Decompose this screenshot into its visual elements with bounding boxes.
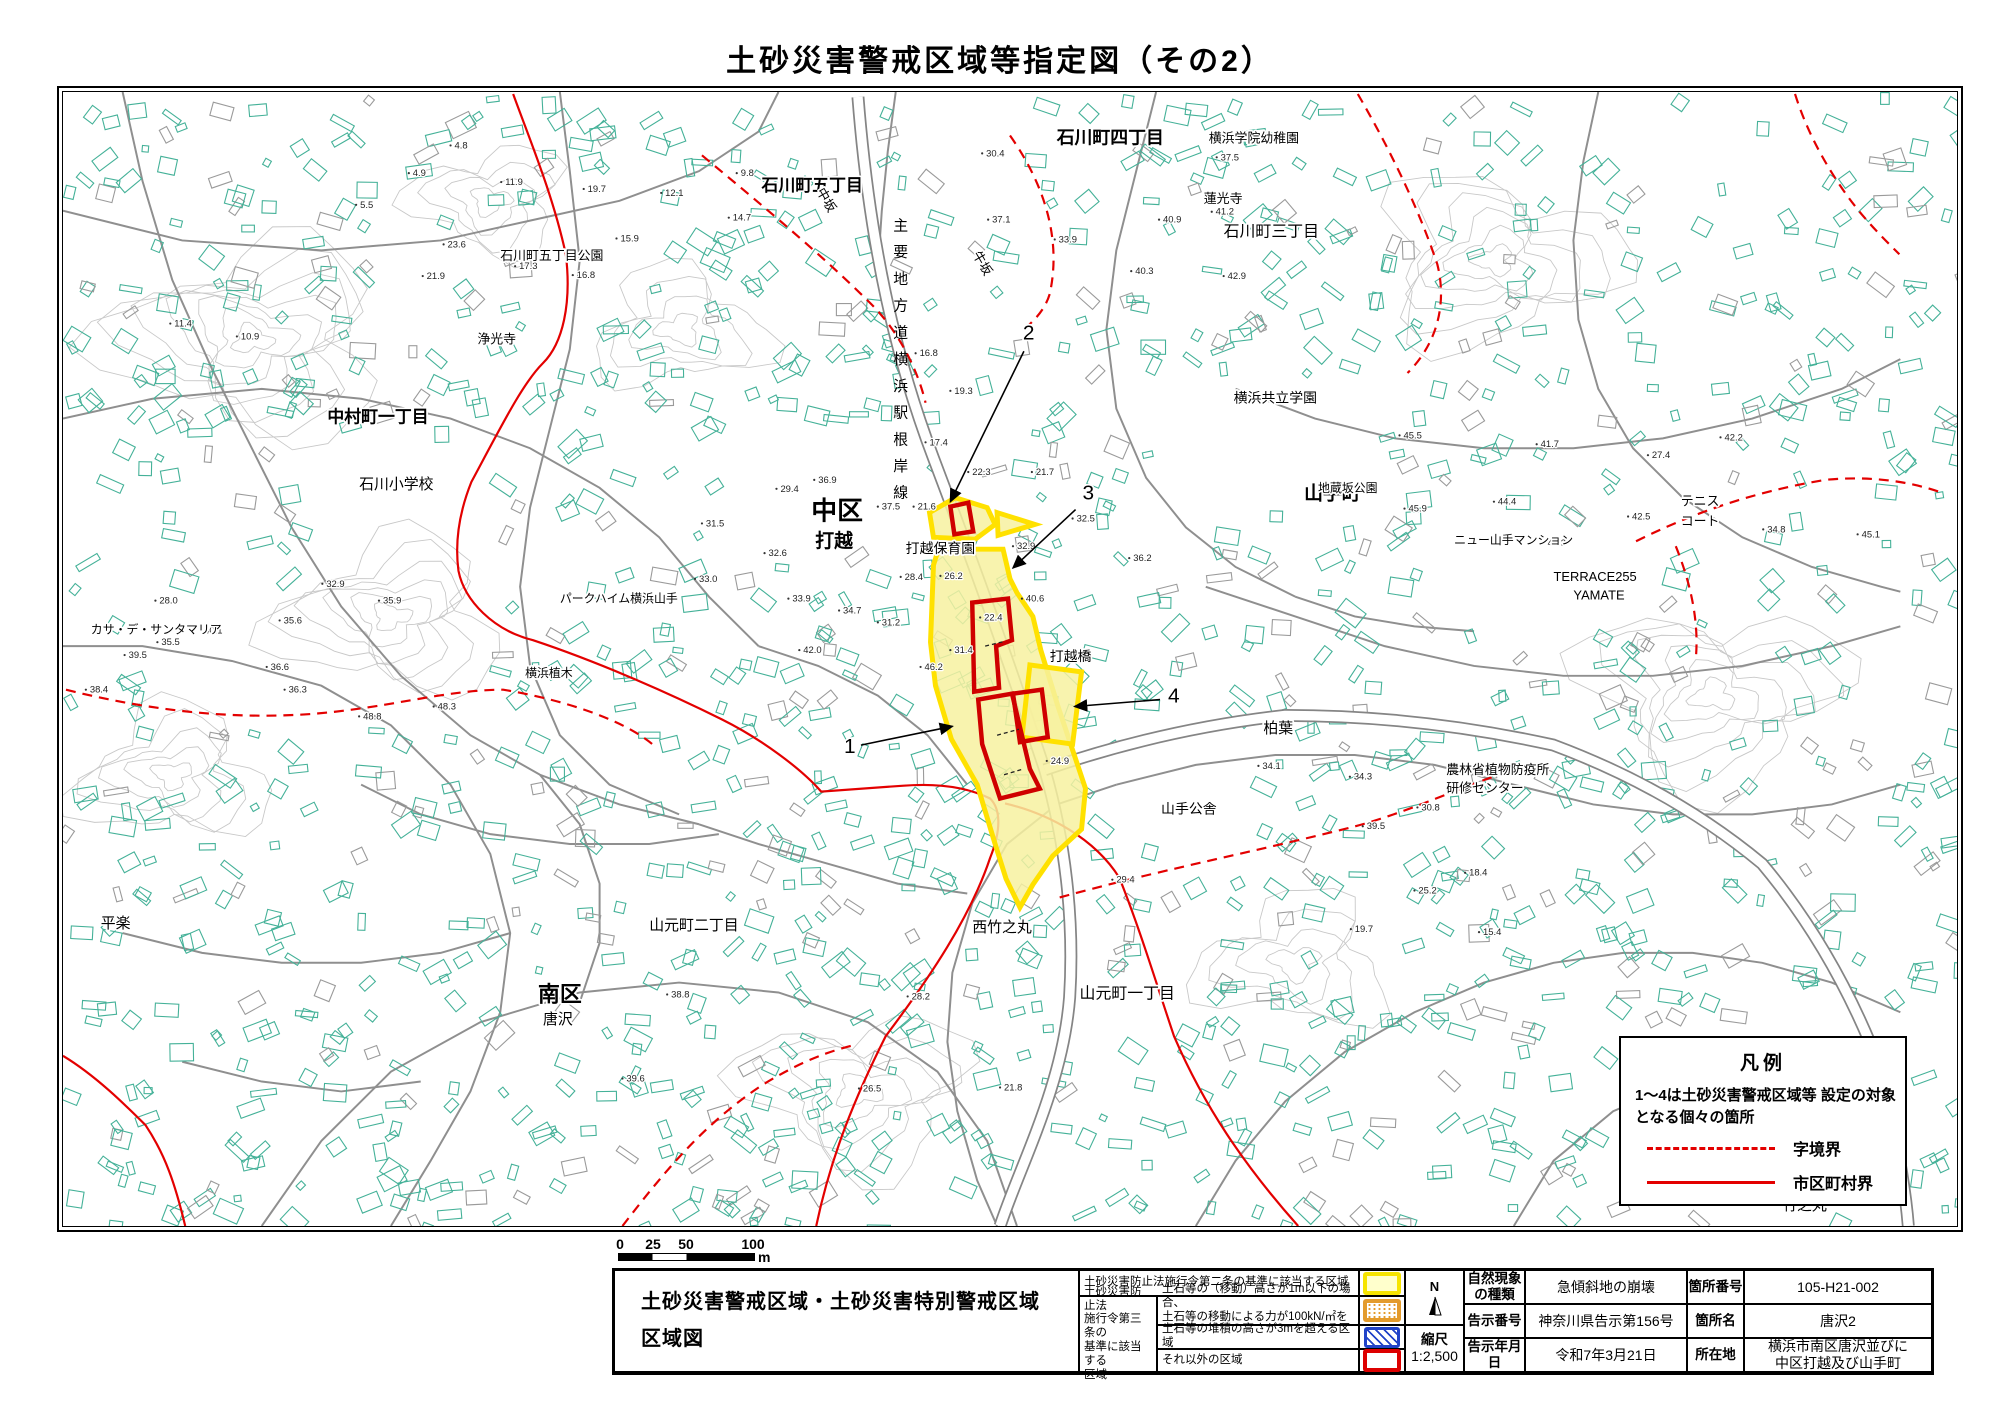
map-sheet-title: 土砂災害警戒区域・土砂災害特別警戒区域 区域図 xyxy=(614,1270,1079,1372)
spot-elevation: 33.0 xyxy=(699,573,717,584)
spot-elevation: 35.9 xyxy=(383,595,401,606)
area-number-1: 1 xyxy=(844,735,856,758)
spot-elevation: 36.3 xyxy=(289,684,307,695)
spot-elevation: 12.1 xyxy=(665,187,683,198)
scale-tick-0: 0 xyxy=(616,1236,624,1252)
law3-row2-desc: 土石等の堆積の高さが3mを超える区域 xyxy=(1157,1325,1359,1349)
main-road-label-char: 横 xyxy=(893,351,908,368)
spot-elevation: 21.6 xyxy=(918,501,936,512)
spot-elevation: 33.9 xyxy=(1059,233,1077,244)
value-location-line1: 横浜市南区唐沢並びに xyxy=(1768,1338,1908,1355)
value-location-line2: 中区打越及び山手町 xyxy=(1768,1355,1908,1372)
map-place-label: コート xyxy=(1681,513,1720,528)
map-place-label: 打越 xyxy=(815,529,853,551)
spot-elevation: 32.6 xyxy=(769,547,787,558)
page: { "page_title": "土砂災害警戒区域等指定図（その2）", "ma… xyxy=(0,0,2000,1414)
spot-elevation: 27.4 xyxy=(1652,449,1670,460)
spot-elevation: 36.6 xyxy=(271,661,289,672)
swatch-cell-red xyxy=(1359,1349,1405,1372)
spot-elevation: 26.2 xyxy=(944,570,962,581)
spot-elevation: 25.2 xyxy=(1418,885,1436,896)
spot-elevation: 28.4 xyxy=(905,571,923,582)
spot-elevation: 22.3 xyxy=(972,466,990,477)
dashed-boundary-label: 字境界 xyxy=(1793,1136,1841,1160)
map-sheet-title-line1: 土砂災害警戒区域・土砂災害特別警戒区域 xyxy=(641,1284,1040,1321)
spot-elevation: 28.0 xyxy=(159,595,177,606)
area-number-3: 3 xyxy=(1083,482,1095,505)
spot-elevation: 39.5 xyxy=(1367,820,1385,831)
law3-row1-desc: 土石等の（移動）高さが1m以下の場合、 土石等の移動による力が100kN/㎡を超… xyxy=(1157,1296,1359,1325)
main-road-label-char: 岸 xyxy=(893,458,908,475)
main-road-label-char: 地 xyxy=(893,271,908,288)
scale-tick-50: 50 xyxy=(678,1236,694,1252)
spot-elevation: 48.8 xyxy=(363,710,381,721)
spot-elevation: 15.4 xyxy=(1483,926,1501,937)
spot-elevation: 40.6 xyxy=(1026,593,1044,604)
label-natural-phenomenon-l1: 自然現象 xyxy=(1468,1271,1522,1287)
spot-elevation: 45.9 xyxy=(1408,503,1426,514)
spot-elevation: 31.4 xyxy=(954,644,972,655)
spot-elevation: 11.4 xyxy=(174,318,192,329)
spot-elevation: 35.6 xyxy=(284,614,302,625)
map-place-label: 西竹之丸 xyxy=(972,919,1032,936)
map-frame: 主要地方道横浜駅根岸線4.84.95.511.919.712.19.817.31… xyxy=(57,86,1963,1232)
spot-elevation: 41.7 xyxy=(1541,438,1559,449)
swatch-cell-blue xyxy=(1359,1325,1405,1349)
spot-elevation: 37.1 xyxy=(992,214,1010,225)
map-place-label: 南区 xyxy=(538,981,582,1006)
map-place-label: 横浜植木 xyxy=(525,666,573,680)
spot-elevation: 42.9 xyxy=(1228,270,1246,281)
spot-elevation: 5.5 xyxy=(360,199,373,210)
map-sheet-title-line2: 区域図 xyxy=(641,1321,1040,1358)
page-title: 土砂災害警戒区域等指定図（その2） xyxy=(0,36,2000,80)
map-place-label: パークハイム横浜山手 xyxy=(560,592,678,606)
spot-elevation: 42.5 xyxy=(1632,510,1650,521)
swatch-cell-yellow xyxy=(1359,1270,1405,1296)
label-site-name: 箇所名 xyxy=(1687,1304,1744,1338)
main-road-label-char: 要 xyxy=(893,245,908,261)
spot-elevation: 40.9 xyxy=(1163,214,1181,225)
label-notice-date: 告示年月日 xyxy=(1464,1338,1525,1372)
spot-elevation: 35.5 xyxy=(161,636,179,647)
map-place-label: 石川町五丁目公園 xyxy=(500,248,603,263)
spot-elevation: 44.4 xyxy=(1498,496,1516,507)
spot-elevation: 42.2 xyxy=(1724,431,1742,442)
spot-elevation: 16.8 xyxy=(920,347,938,358)
law3-zone-label: 土砂災害防止法 施行令第三条の 基準に該当する 区域 xyxy=(1079,1296,1157,1372)
map-place-label: YAMATE xyxy=(1573,588,1625,603)
map-place-label: 平楽 xyxy=(101,915,131,932)
main-road-label-char: 浜 xyxy=(893,378,908,395)
map-place-label: 石川町四丁目 xyxy=(1056,127,1164,147)
spot-elevation: 36.2 xyxy=(1133,552,1151,563)
map-place-label: 蓮光寺 xyxy=(1204,191,1243,206)
area-number-2: 2 xyxy=(1023,321,1035,344)
spot-elevation: 40.3 xyxy=(1135,265,1153,276)
legend-row-solid: 市区町村界 xyxy=(1621,1167,1905,1197)
legend-note: 1〜4は土砂災害警戒区域等 設定の対象となる個々の箇所 xyxy=(1635,1085,1905,1129)
spot-elevation: 45.1 xyxy=(1862,528,1880,539)
map-place-label: 唐沢 xyxy=(543,1011,573,1028)
map-place-label: テニス xyxy=(1681,494,1720,509)
label-location: 所在地 xyxy=(1687,1338,1744,1372)
spot-elevation: 4.9 xyxy=(413,167,426,178)
spot-elevation: 34.1 xyxy=(1262,760,1280,771)
map-place-label: 中村町一丁目 xyxy=(327,407,428,427)
main-road-label-char: 駅 xyxy=(893,406,908,422)
blue-zone-swatch xyxy=(1364,1327,1400,1348)
spot-elevation: 34.8 xyxy=(1767,523,1785,534)
law3-row1-desc-line1: 土石等の（移動）高さが1m以下の場合、 xyxy=(1162,1283,1354,1311)
map-place-label: 柏葉 xyxy=(1263,720,1293,737)
spot-elevation: 26.5 xyxy=(863,1082,881,1093)
spot-elevation: 38.4 xyxy=(90,684,108,695)
spot-elevation: 21.9 xyxy=(427,270,445,281)
map-place-label: 中区 xyxy=(811,497,863,526)
legend-title: 凡例 xyxy=(1621,1048,1905,1075)
main-road-label-char: 根 xyxy=(893,431,908,448)
map-legend: 凡例 1〜4は土砂災害警戒区域等 設定の対象となる個々の箇所 字境界 市区町村界 xyxy=(1619,1036,1907,1206)
scale-tick-25: 25 xyxy=(645,1236,661,1252)
dashed-boundary-sample xyxy=(1647,1147,1775,1150)
spot-elevation: 39.6 xyxy=(626,1073,644,1084)
label-site-number: 箇所番号 xyxy=(1687,1270,1744,1304)
main-road-label-char: 道 xyxy=(893,324,908,341)
map-place-label: 地蔵坂公園 xyxy=(1318,481,1377,495)
law3-line2: 施行令第三条の xyxy=(1084,1313,1152,1341)
spot-elevation: 21.8 xyxy=(1004,1081,1022,1092)
scale-cell: 縮尺 1:2,500 xyxy=(1405,1325,1464,1372)
main-road-label-char: 線 xyxy=(893,485,908,502)
spot-elevation: 30.4 xyxy=(986,147,1004,158)
label-natural-phenomenon: 自然現象の種類 xyxy=(1464,1270,1525,1304)
spot-elevation: 42.0 xyxy=(803,644,821,655)
yellow-zone-swatch xyxy=(1363,1272,1401,1295)
spot-elevation: 29.4 xyxy=(1116,874,1134,885)
spot-elevation: 21.7 xyxy=(1036,466,1054,477)
label-notice-number: 告示番号 xyxy=(1464,1304,1525,1338)
spot-elevation: 11.9 xyxy=(505,176,523,187)
map-place-label: 牛坂 xyxy=(970,248,996,278)
scale-bar: 0 25 50 100 m xyxy=(600,1236,820,1270)
spot-elevation: 33.9 xyxy=(792,593,810,604)
spot-elevation: 24.9 xyxy=(1051,755,1069,766)
map-place-label: 農林省植物防疫所 xyxy=(1446,762,1549,777)
hazard-zones xyxy=(930,498,1086,908)
scale-label: 縮尺 xyxy=(1411,1332,1458,1348)
scale-bar-strip xyxy=(618,1253,755,1261)
main-road-label-char: 方 xyxy=(893,298,908,315)
spot-elevation: 10.9 xyxy=(241,330,259,341)
value-notice-date: 令和7年3月21日 xyxy=(1525,1338,1687,1372)
spot-elevation: 4.8 xyxy=(455,139,468,150)
spot-elevation: 39.5 xyxy=(129,649,147,660)
map-inner: 主要地方道横浜駅根岸線4.84.95.511.919.712.19.817.31… xyxy=(62,91,1958,1227)
info-table: 土砂災害警戒区域・土砂災害特別警戒区域 区域図 土砂災害防止法施行令第二条の基準… xyxy=(612,1268,1934,1375)
law3-line4: 区域 xyxy=(1084,1369,1152,1383)
spot-elevation: 23.6 xyxy=(448,238,466,249)
law3-row3-desc: それ以外の区域 xyxy=(1157,1349,1359,1372)
legend-note-line1: 1〜4は土砂災害警戒区域等 xyxy=(1635,1087,1817,1104)
value-notice-number: 神奈川県告示第156号 xyxy=(1525,1304,1687,1338)
value-natural-phenomenon: 急傾斜地の崩壊 xyxy=(1525,1270,1687,1304)
scale-value: 1:2,500 xyxy=(1411,1348,1458,1365)
swatch-cell-orange xyxy=(1359,1296,1405,1325)
spot-elevation: 32.5 xyxy=(1077,512,1095,523)
value-site-name: 唐沢2 xyxy=(1744,1304,1932,1338)
map-place-label: 石川町五丁目 xyxy=(761,176,863,195)
spot-elevation: 34.7 xyxy=(843,605,861,616)
spot-elevation: 37.5 xyxy=(882,501,900,512)
map-place-label: 浄光寺 xyxy=(477,331,516,346)
spot-elevation: 14.7 xyxy=(733,212,751,223)
area-number-4: 4 xyxy=(1168,685,1180,708)
compass-cell: N xyxy=(1405,1270,1464,1325)
scale-unit: m xyxy=(758,1249,770,1265)
spot-elevation: 19.3 xyxy=(954,385,972,396)
spot-elevation: 19.7 xyxy=(1355,923,1373,934)
spot-elevation: 29.4 xyxy=(780,483,798,494)
map-place-label: 横浜学院幼稚園 xyxy=(1209,130,1299,145)
map-place-label: 山手公舎 xyxy=(1161,800,1217,816)
spot-elevation: 15.9 xyxy=(620,232,638,243)
spot-elevation: 19.7 xyxy=(588,183,606,194)
spot-elevation: 18.4 xyxy=(1469,867,1487,878)
law3-line1: 土砂災害防止法 xyxy=(1084,1286,1152,1314)
spot-elevation: 31.2 xyxy=(882,616,900,627)
map-place-label: 山元町一丁目 xyxy=(1080,984,1175,1002)
spot-elevation: 32.9 xyxy=(326,578,344,589)
value-site-number: 105-H21-002 xyxy=(1744,1270,1932,1304)
value-location: 横浜市南区唐沢並びに中区打越及び山手町 xyxy=(1744,1338,1932,1372)
spot-elevation: 28.2 xyxy=(912,990,930,1001)
map-place-label: 山元町二丁目 xyxy=(649,917,738,934)
spot-elevation: 31.5 xyxy=(706,517,724,528)
legend-row-dashed: 字境界 xyxy=(1621,1133,1905,1163)
spot-elevation: 34.3 xyxy=(1354,771,1372,782)
map-place-label: 石川町三丁目 xyxy=(1224,223,1319,240)
spot-elevation: 38.8 xyxy=(671,988,689,999)
spot-elevation: 17.4 xyxy=(930,436,948,447)
spot-elevation: 16.8 xyxy=(577,269,595,280)
spot-elevation: 37.5 xyxy=(1221,151,1239,162)
red-zone-swatch xyxy=(1363,1349,1401,1372)
spot-elevation: 46.2 xyxy=(925,661,943,672)
map-place-label: 横浜共立学園 xyxy=(1234,390,1317,406)
map-place-label: TERRACE255 xyxy=(1554,569,1637,584)
orange-zone-swatch xyxy=(1363,1299,1401,1322)
compass-n-label: N xyxy=(1430,1279,1439,1295)
north-arrow-icon xyxy=(1427,1296,1443,1316)
map-place-label: 打越橋 xyxy=(1050,648,1092,664)
spot-elevation: 48.3 xyxy=(438,700,456,711)
map-place-label: カサ・デ・サンタマリア xyxy=(91,622,222,636)
spot-elevation: 9.8 xyxy=(741,167,754,178)
main-road-label-char: 主 xyxy=(893,218,908,235)
label-natural-phenomenon-l2: の種類 xyxy=(1468,1287,1522,1303)
map-place-label: 打越保育園 xyxy=(906,540,976,556)
solid-boundary-label: 市区町村界 xyxy=(1793,1170,1873,1194)
spot-elevation: 22.4 xyxy=(984,611,1002,622)
spot-elevation: 45.5 xyxy=(1404,429,1422,440)
spot-elevation: 41.2 xyxy=(1216,206,1234,217)
spot-elevation: 30.8 xyxy=(1421,801,1439,812)
spot-elevation: 36.9 xyxy=(818,474,836,485)
law3-line3: 基準に該当する xyxy=(1084,1341,1152,1369)
map-place-label: 石川小学校 xyxy=(359,476,434,493)
solid-boundary-sample xyxy=(1647,1181,1775,1184)
map-place-label: 研修センター xyxy=(1446,781,1523,796)
map-place-label: ニュー山手マンション xyxy=(1454,533,1573,547)
